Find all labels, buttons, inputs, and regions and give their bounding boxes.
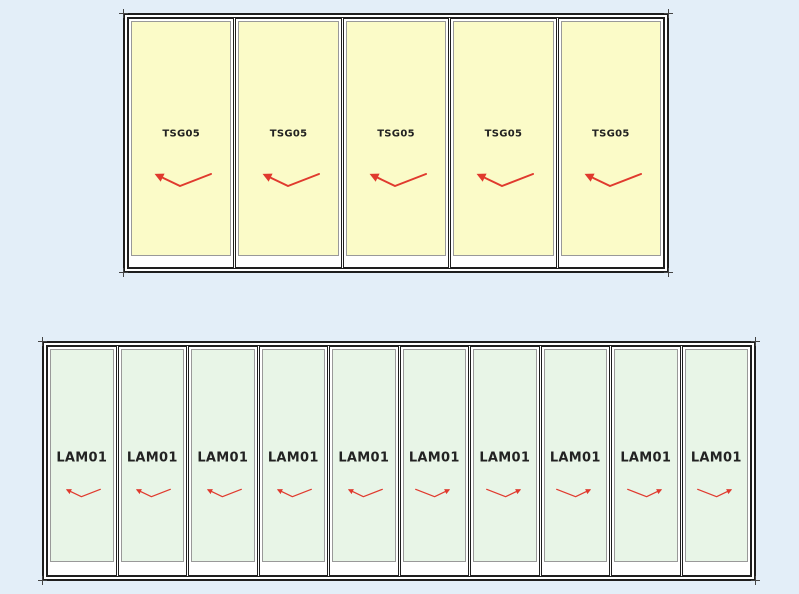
glass-pane: TSG05	[131, 21, 231, 256]
glass-pane: LAM01	[685, 349, 749, 562]
corner-tick-icon	[751, 576, 760, 585]
panel[interactable]: LAM01	[682, 346, 752, 576]
panel-label: LAM01	[268, 450, 319, 465]
glass-pane: LAM01	[332, 349, 396, 562]
glass-pane: LAM01	[262, 349, 326, 562]
panel[interactable]: LAM01	[118, 346, 188, 576]
panel[interactable]: TSG05	[343, 18, 449, 268]
swing-arrow-svg	[555, 488, 595, 499]
panel-label: TSG05	[377, 128, 415, 139]
panel[interactable]: LAM01	[329, 346, 399, 576]
corner-tick-icon	[664, 268, 673, 277]
panel[interactable]: LAM01	[611, 346, 681, 576]
swing-arrow-icon	[62, 488, 102, 499]
swing-arrow-icon	[471, 171, 535, 189]
swing-arrow-svg	[364, 171, 428, 189]
elevation-bottom: LAM01 LAM01 LAM01	[42, 341, 756, 581]
swing-arrow-svg	[626, 488, 666, 499]
glass-pane: TSG05	[238, 21, 338, 256]
swing-arrow-svg	[257, 171, 321, 189]
panel[interactable]: LAM01	[470, 346, 540, 576]
swing-arrow-svg	[344, 488, 384, 499]
swing-arrow-svg	[132, 488, 172, 499]
panel-label: TSG05	[592, 128, 630, 139]
swing-arrow-icon	[579, 171, 643, 189]
swing-arrow-svg	[149, 171, 213, 189]
panel[interactable]: LAM01	[259, 346, 329, 576]
swing-arrow-svg	[62, 488, 102, 499]
panel[interactable]: TSG05	[235, 18, 341, 268]
panel[interactable]: TSG05	[128, 18, 234, 268]
panel[interactable]: LAM01	[47, 346, 117, 576]
panel[interactable]: LAM01	[400, 346, 470, 576]
elevation-top: TSG05 TSG05 TSG05	[123, 13, 669, 273]
panel-label: LAM01	[550, 450, 601, 465]
swing-arrow-svg	[273, 488, 313, 499]
glass-pane: LAM01	[121, 349, 185, 562]
corner-tick-icon	[664, 9, 673, 18]
glass-pane: TSG05	[453, 21, 553, 256]
panel-label: LAM01	[56, 450, 107, 465]
panel-label: LAM01	[409, 450, 460, 465]
panel-label: LAM01	[691, 450, 742, 465]
glass-pane: LAM01	[544, 349, 608, 562]
glass-pane: TSG05	[346, 21, 446, 256]
swing-arrow-svg	[696, 488, 736, 499]
swing-arrow-svg	[579, 171, 643, 189]
swing-arrow-svg	[203, 488, 243, 499]
panel[interactable]: LAM01	[188, 346, 258, 576]
swing-arrow-icon	[203, 488, 243, 499]
swing-arrow-svg	[485, 488, 525, 499]
panel-label: LAM01	[479, 450, 530, 465]
panel-label: LAM01	[338, 450, 389, 465]
corner-tick-icon	[119, 268, 128, 277]
panel[interactable]: TSG05	[450, 18, 556, 268]
glass-pane: LAM01	[191, 349, 255, 562]
glass-pane: LAM01	[50, 349, 114, 562]
outer-frame: TSG05 TSG05 TSG05	[127, 17, 665, 269]
swing-arrow-icon	[273, 488, 313, 499]
panel-label: TSG05	[270, 128, 308, 139]
corner-tick-icon	[751, 337, 760, 346]
swing-arrow-icon	[555, 488, 595, 499]
swing-arrow-icon	[257, 171, 321, 189]
outer-frame: LAM01 LAM01 LAM01	[46, 345, 752, 577]
panel[interactable]: LAM01	[541, 346, 611, 576]
glass-pane: TSG05	[561, 21, 661, 256]
swing-arrow-svg	[414, 488, 454, 499]
swing-arrow-icon	[364, 171, 428, 189]
panel-label: LAM01	[620, 450, 671, 465]
glass-pane: LAM01	[614, 349, 678, 562]
swing-arrow-icon	[696, 488, 736, 499]
swing-arrow-icon	[414, 488, 454, 499]
swing-arrow-icon	[344, 488, 384, 499]
panel-label: TSG05	[485, 128, 523, 139]
swing-arrow-icon	[626, 488, 666, 499]
swing-arrow-icon	[485, 488, 525, 499]
swing-arrow-svg	[471, 171, 535, 189]
glass-pane: LAM01	[473, 349, 537, 562]
glass-pane: LAM01	[403, 349, 467, 562]
corner-tick-icon	[38, 576, 47, 585]
swing-arrow-icon	[132, 488, 172, 499]
panel-label: LAM01	[127, 450, 178, 465]
panel-label: TSG05	[162, 128, 200, 139]
drawing-canvas: TSG05 TSG05 TSG05	[0, 0, 799, 594]
panel[interactable]: TSG05	[558, 18, 664, 268]
panel-label: LAM01	[197, 450, 248, 465]
swing-arrow-icon	[149, 171, 213, 189]
